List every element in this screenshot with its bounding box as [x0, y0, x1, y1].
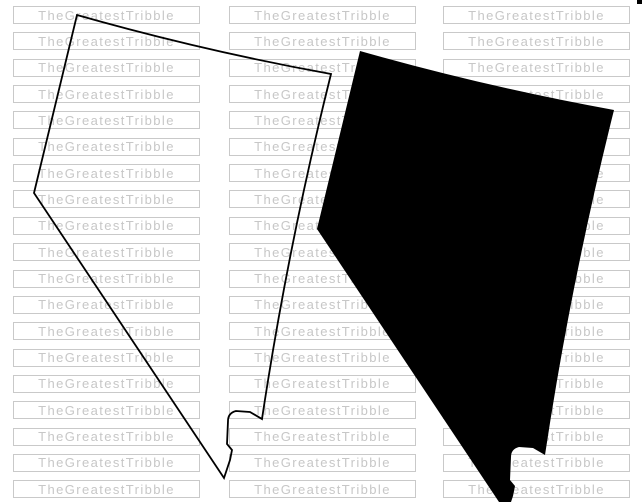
nevada-silhouette-map — [317, 51, 614, 502]
page-canvas: TheGreatestTribbleTheGreatestTribbleTheG… — [0, 0, 642, 502]
maps-svg — [0, 0, 642, 502]
corner-mark — [637, 0, 642, 4]
nevada-outline-map — [34, 15, 331, 478]
